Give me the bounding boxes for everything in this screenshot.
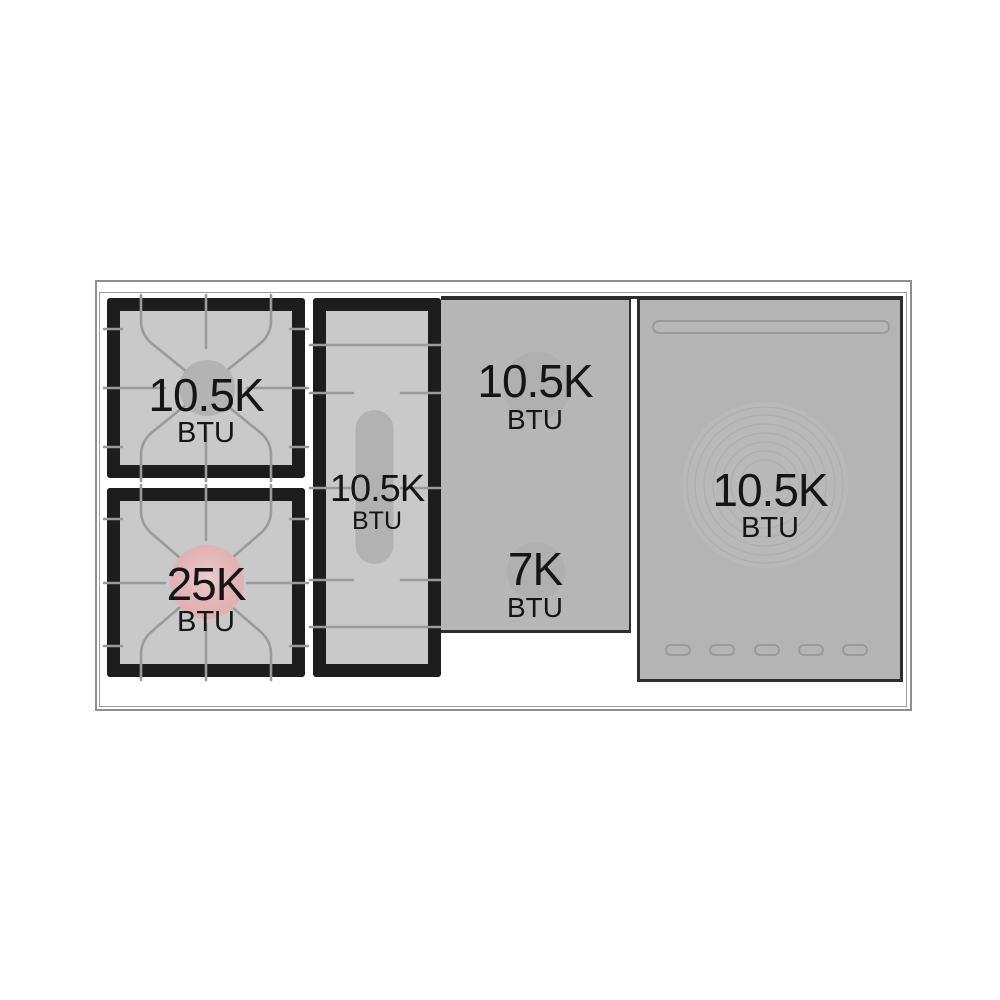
middle-burner-panel: 10.5K BTU 7K BTU (441, 297, 631, 633)
vent-slot (754, 644, 780, 656)
burner-grate-icon (107, 298, 305, 478)
burner-cap (179, 360, 235, 416)
vent-slot (665, 644, 691, 656)
burner-shadow-bottom (507, 542, 565, 600)
burner-grate-icon (107, 488, 305, 677)
high-output-burner-cap (170, 545, 244, 619)
french-top-panel: 10.5K BTU (637, 297, 903, 682)
panel-handle-groove (652, 320, 890, 334)
vent-slot (798, 644, 824, 656)
vent-slot (709, 644, 735, 656)
burner-grate-bottom-left: 25K BTU (107, 488, 305, 677)
burner-shadow-top (503, 352, 571, 420)
griddle-grate-icon (313, 298, 441, 677)
griddle-section: 10.5K BTU (313, 298, 441, 677)
burner-grate-top-left: 10.5K BTU (107, 298, 305, 478)
griddle-burner-shape (356, 410, 394, 564)
french-plate-icon (681, 401, 849, 569)
range-top-diagram: 10.5K BTU (0, 0, 1000, 1000)
vent-slot (842, 644, 868, 656)
